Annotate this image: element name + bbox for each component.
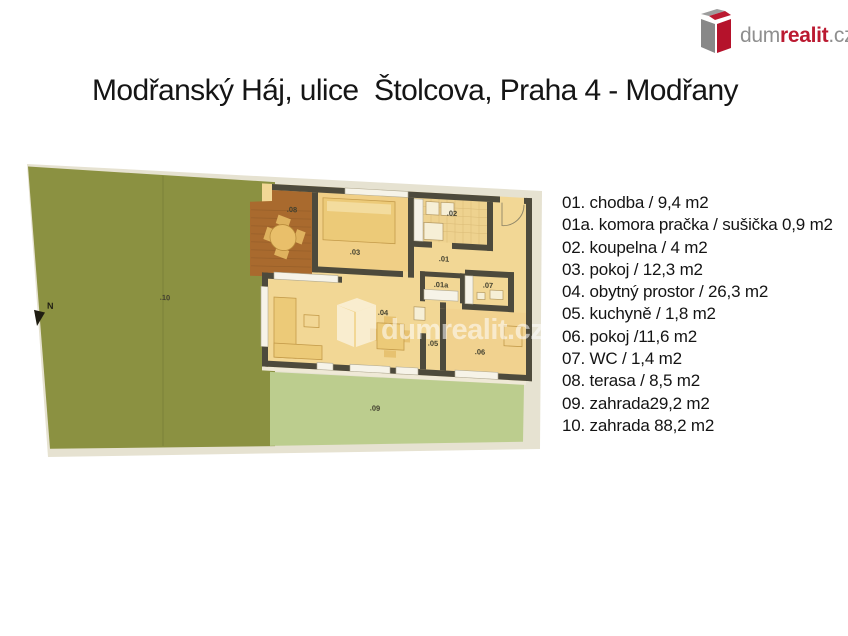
room-label-01a: .01a	[434, 280, 449, 290]
wc-sink-icon	[477, 292, 485, 299]
watermark-icon	[337, 298, 376, 347]
legend-item-05: 05. kuchyně / 1,8 m2	[562, 303, 833, 325]
legend-item-03: 03. pokoj / 12,3 m2	[562, 259, 833, 281]
toilet-icon	[490, 290, 503, 300]
legend-item-08: 08. terasa / 8,5 m2	[562, 370, 833, 392]
legend-item-01a: 01a. komora pračka / sušička 0,9 m2	[562, 214, 833, 236]
living-side-window	[261, 286, 268, 346]
north-label: N	[47, 301, 53, 311]
bathroom-door	[414, 199, 423, 241]
window-3	[396, 367, 418, 375]
room-label-01: .01	[439, 254, 449, 264]
wc-door	[465, 276, 473, 304]
watermark-text: dumrealit.cz	[381, 314, 544, 346]
legend-item-06: 06. pokoj /11,6 m2	[562, 326, 833, 348]
washer-icon	[426, 201, 439, 215]
page: dumrealit.cz Modřanský Háj, ulice Štolco…	[0, 0, 848, 636]
room-label-02: .02	[447, 209, 457, 219]
legend-item-04: 04. obytný prostor / 26,3 m2	[562, 281, 833, 303]
bathroom-tiles	[423, 198, 487, 245]
legend-item-09: 09. zahrada29,2 m2	[562, 393, 833, 415]
bath-sink-icon	[424, 222, 443, 240]
legend-item-07: 07. WC / 1,4 m2	[562, 348, 833, 370]
room-label-03: .03	[350, 247, 360, 257]
room-label-06: .06	[475, 347, 485, 357]
room-label-07: .07	[483, 281, 493, 291]
room-label-09: .09	[370, 403, 380, 413]
window-1	[317, 362, 333, 370]
terrace	[250, 189, 312, 279]
room-label-10: .10	[160, 293, 170, 303]
room-label-08: .08	[287, 205, 297, 215]
garden-large	[28, 167, 275, 462]
legend-item-10: 10. zahrada 88,2 m2	[562, 415, 833, 437]
legend: 01. chodba / 9,4 m2 01a. komora pračka /…	[562, 192, 833, 437]
legend-item-02: 02. koupelna / 4 m2	[562, 237, 833, 259]
closet-shelf	[424, 289, 458, 301]
sofa-chaise	[274, 343, 322, 360]
legend-item-01: 01. chodba / 9,4 m2	[562, 192, 833, 214]
